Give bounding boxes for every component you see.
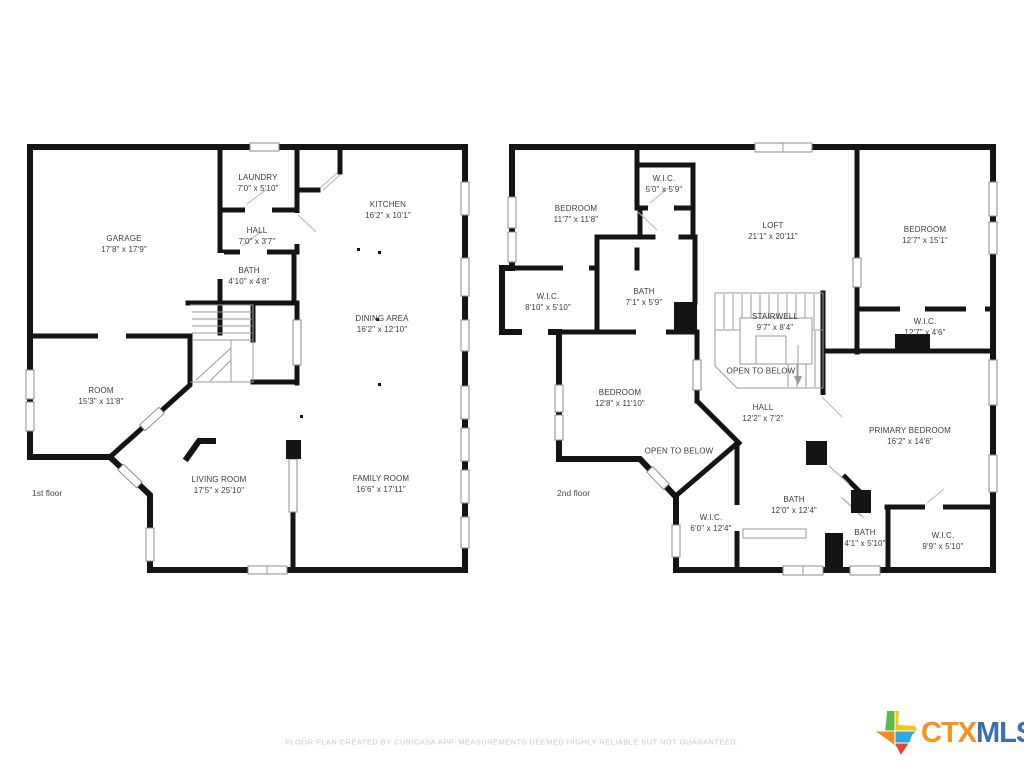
room-name: BATH xyxy=(228,265,269,276)
room-dimensions: 12'0" x 12'4" xyxy=(771,505,817,516)
room-dimensions: 6'0" x 12'4" xyxy=(690,523,731,534)
ctxmls-logo: CTXMLS xyxy=(874,710,1024,756)
room-name: KITCHEN xyxy=(365,199,411,210)
room-label: W.I.C.5'0" x 5'9" xyxy=(646,173,683,195)
room-label: LIVING ROOM17'5" x 25'10" xyxy=(192,474,247,496)
room-name: BEDROOM xyxy=(554,203,599,214)
room-label: W.I.C.6'0" x 12'4" xyxy=(690,512,731,534)
room-name: W.I.C. xyxy=(525,291,571,302)
room-dimensions: 7'0" x 3'7" xyxy=(239,236,276,247)
logo-text-ctx: CTX xyxy=(921,710,976,756)
room-label: BEDROOM11'7" x 11'8" xyxy=(554,203,599,225)
room-name: STAIRWELL xyxy=(752,311,798,322)
room-label: BEDROOM12'8" x 11'10" xyxy=(595,387,645,409)
room-name: W.I.C. xyxy=(646,173,683,184)
room-label: HALL7'0" x 3'7" xyxy=(239,225,276,247)
room-label: ROOM15'3" x 11'8" xyxy=(78,385,123,407)
room-name: ROOM xyxy=(78,385,123,396)
room-dimensions: 4'10" x 4'8" xyxy=(228,276,269,287)
floor-label: 2nd floor xyxy=(557,488,590,498)
room-name: LAUNDRY xyxy=(237,172,278,183)
room-label: BATH4'10" x 4'8" xyxy=(228,265,269,287)
room-dimensions: 7'1" x 5'9" xyxy=(626,297,663,308)
room-dimensions: 12'8" x 11'10" xyxy=(595,398,645,409)
room-name: BATH xyxy=(844,527,885,538)
logo-text-mls: MLS xyxy=(976,710,1024,756)
room-label: FAMILY ROOM16'6" x 17'11" xyxy=(353,473,409,495)
room-name: OPEN TO BELOW xyxy=(645,446,714,457)
room-name: BATH xyxy=(626,286,663,297)
room-name: W.I.C. xyxy=(690,512,731,523)
room-dimensions: 21'1" x 20'11" xyxy=(748,231,798,242)
room-dimensions: 8'10" x 5'10" xyxy=(525,302,571,313)
room-label: LAUNDRY7'0" x 5'10" xyxy=(237,172,278,194)
room-label: W.I.C.8'10" x 5'10" xyxy=(525,291,571,313)
room-label: BATH7'1" x 5'9" xyxy=(626,286,663,308)
room-name: W.I.C. xyxy=(904,316,945,327)
room-dimensions: 16'2" x 10'1" xyxy=(365,210,411,221)
room-dimensions: 4'1" x 5'10" xyxy=(844,538,885,549)
room-label: LOFT21'1" x 20'11" xyxy=(748,220,798,242)
room-name: HALL xyxy=(742,402,783,413)
room-dimensions: 16'2" x 14'6" xyxy=(869,436,951,447)
room-name: LIVING ROOM xyxy=(192,474,247,485)
room-name: FAMILY ROOM xyxy=(353,473,409,484)
disclaimer-text: FLOOR PLAN CREATED BY CUBICASA APP. MEAS… xyxy=(285,738,738,747)
room-dimensions: 16'6" x 17'11" xyxy=(353,484,409,495)
room-dimensions: 17'8" x 17'9" xyxy=(101,244,147,255)
floor-label: 1st floor xyxy=(32,488,62,498)
room-label: W.I.C.9'9" x 5'10" xyxy=(922,530,963,552)
room-label: HALL12'2" x 7'2" xyxy=(742,402,783,424)
room-dimensions: 12'7" x 4'6" xyxy=(904,327,945,338)
room-dimensions: 11'7" x 11'8" xyxy=(554,214,599,225)
texas-icon xyxy=(874,710,918,756)
room-label: GARAGE17'8" x 17'9" xyxy=(101,233,147,255)
room-name: GARAGE xyxy=(101,233,147,244)
room-dimensions: 15'3" x 11'8" xyxy=(78,396,123,407)
room-name: BEDROOM xyxy=(902,224,948,235)
room-label: BATH12'0" x 12'4" xyxy=(771,494,817,516)
room-dimensions: 9'9" x 5'10" xyxy=(922,541,963,552)
room-labels-layer: 1st floorGARAGE17'8" x 17'9"LAUNDRY7'0" … xyxy=(0,0,1024,768)
room-label: KITCHEN16'2" x 10'1" xyxy=(365,199,411,221)
room-dimensions: 17'5" x 25'10" xyxy=(192,485,247,496)
room-label: BATH4'1" x 5'10" xyxy=(844,527,885,549)
room-label: OPEN TO BELOW xyxy=(727,366,796,377)
room-dimensions: 16'2" x 12'10" xyxy=(355,324,408,335)
room-name: BATH xyxy=(771,494,817,505)
floorplan-page: 1st floorGARAGE17'8" x 17'9"LAUNDRY7'0" … xyxy=(0,0,1024,768)
room-name: OPEN TO BELOW xyxy=(727,366,796,377)
room-name: HALL xyxy=(239,225,276,236)
room-dimensions: 12'2" x 7'2" xyxy=(742,413,783,424)
room-label: OPEN TO BELOW xyxy=(645,446,714,457)
room-name: W.I.C. xyxy=(922,530,963,541)
room-name: PRIMARY BEDROOM xyxy=(869,425,951,436)
room-dimensions: 9'7" x 8'4" xyxy=(752,322,798,333)
room-label: W.I.C.12'7" x 4'6" xyxy=(904,316,945,338)
room-label: PRIMARY BEDROOM16'2" x 14'6" xyxy=(869,425,951,447)
room-dimensions: 5'0" x 5'9" xyxy=(646,184,683,195)
room-dimensions: 7'0" x 5'10" xyxy=(237,183,278,194)
room-label: DINING AREA16'2" x 12'10" xyxy=(355,313,408,335)
room-name: DINING AREA xyxy=(355,313,408,324)
room-name: LOFT xyxy=(748,220,798,231)
room-label: BEDROOM12'7" x 15'1" xyxy=(902,224,948,246)
room-name: BEDROOM xyxy=(595,387,645,398)
room-dimensions: 12'7" x 15'1" xyxy=(902,235,948,246)
room-label: STAIRWELL9'7" x 8'4" xyxy=(752,311,798,333)
